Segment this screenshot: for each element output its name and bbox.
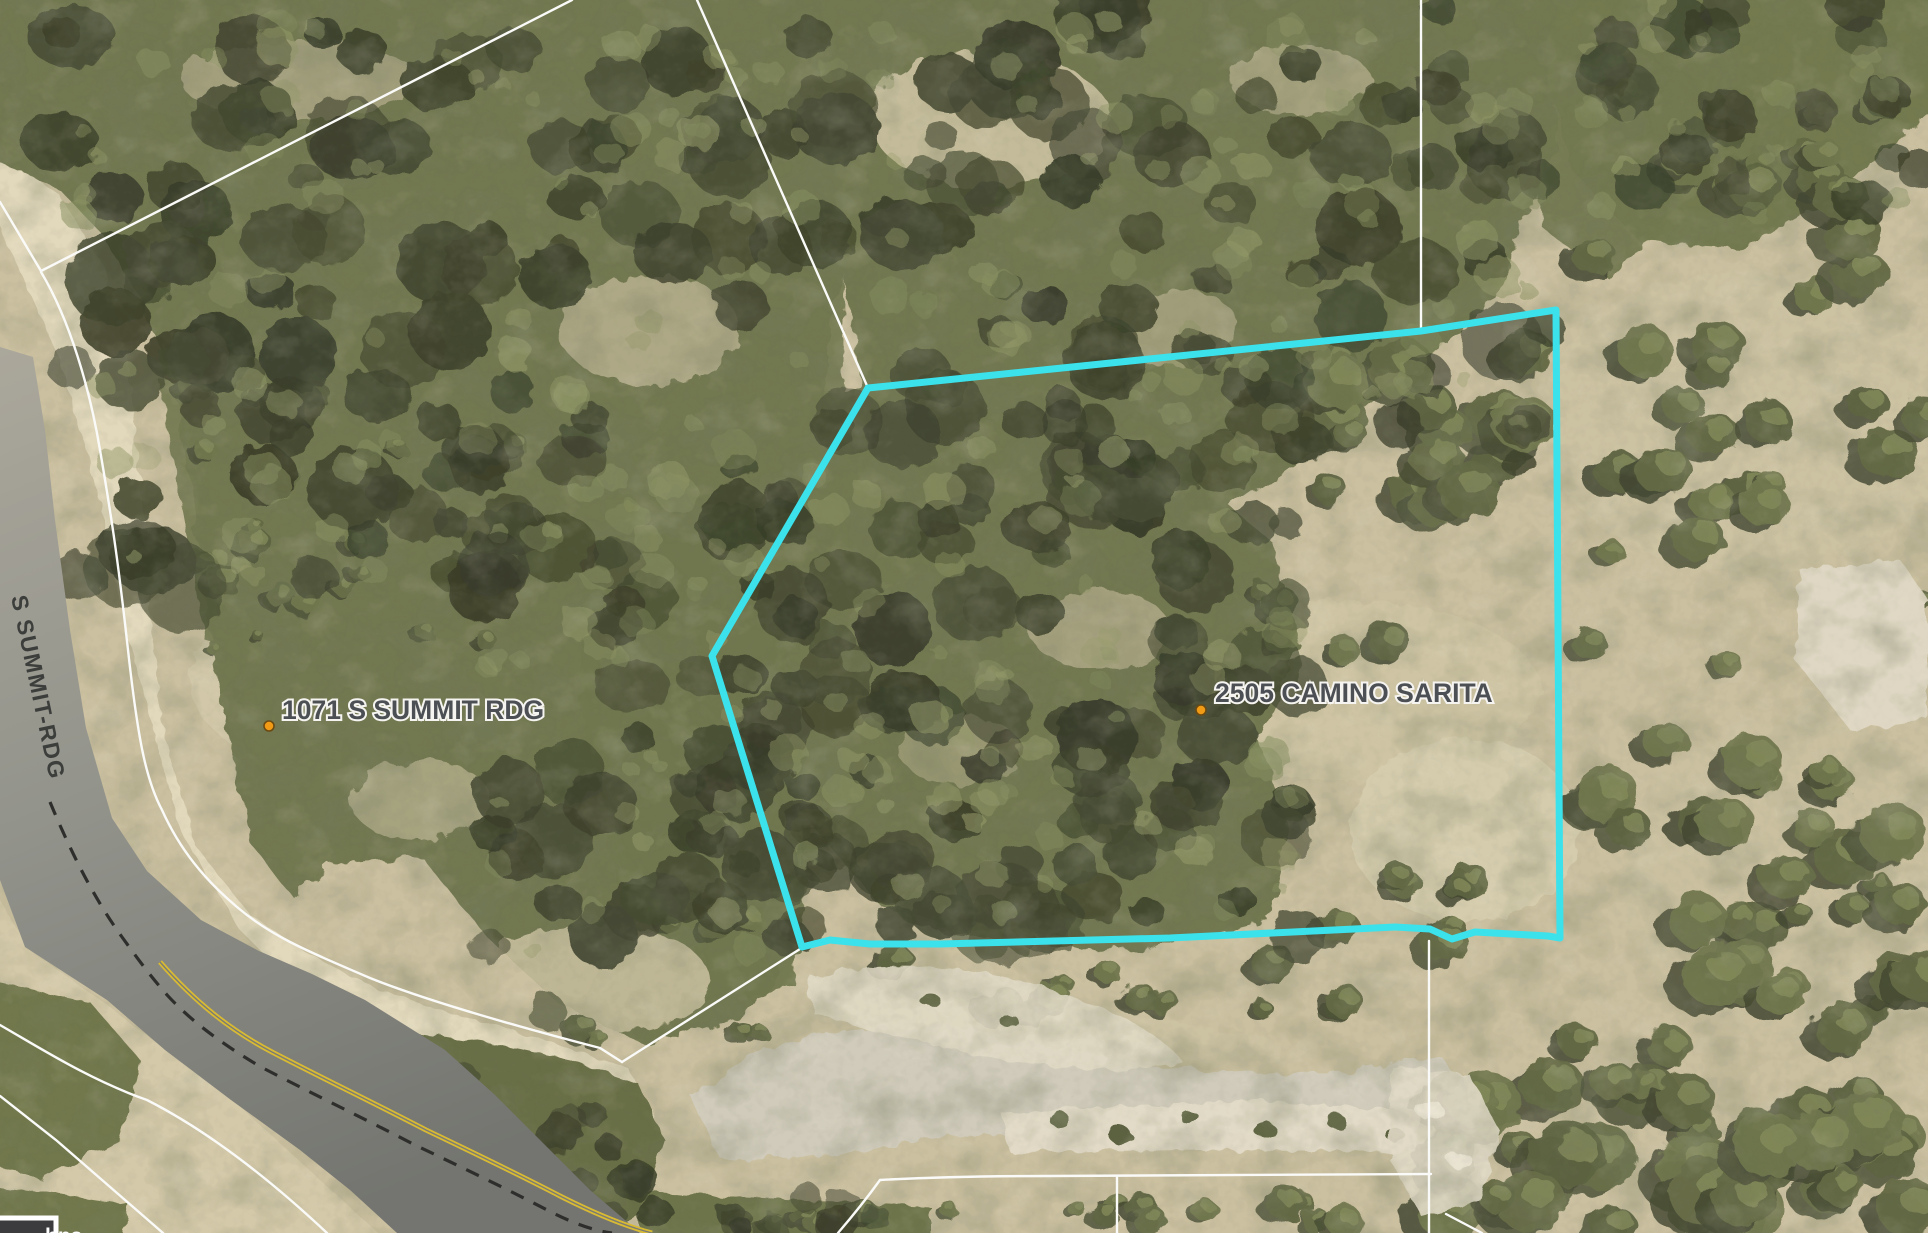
svg-text:bps: bps: [45, 1225, 82, 1233]
svg-text:1071 S SUMMIT RDG: 1071 S SUMMIT RDG: [282, 695, 544, 725]
svg-text:2505 CAMINO SARITA: 2505 CAMINO SARITA: [1215, 678, 1493, 708]
